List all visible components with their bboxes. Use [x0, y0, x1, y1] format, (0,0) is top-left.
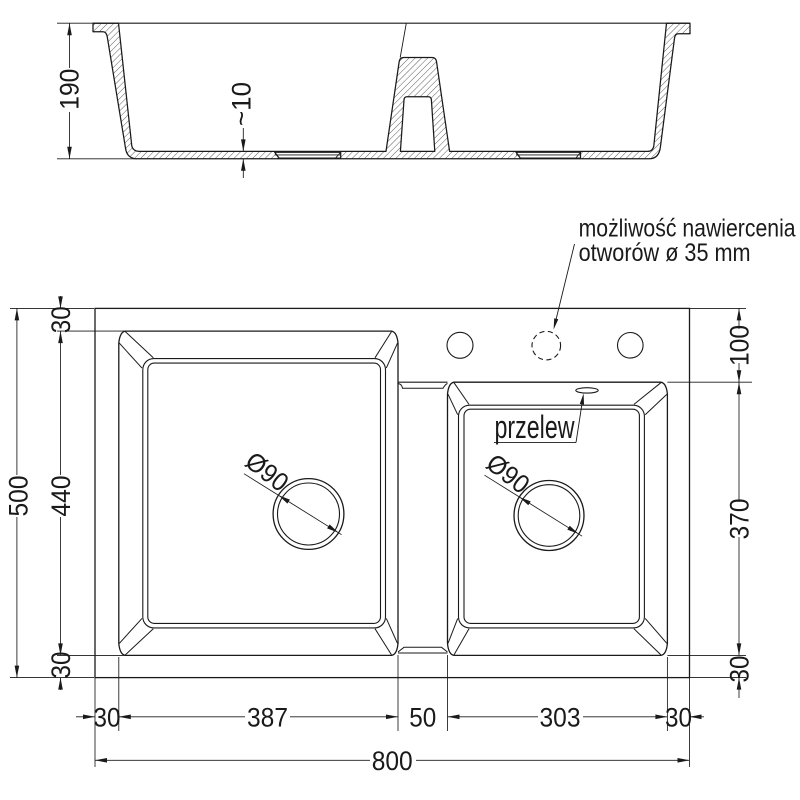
- svg-text:100: 100: [725, 325, 755, 366]
- svg-text:303: 303: [540, 703, 581, 733]
- svg-text:30: 30: [665, 703, 692, 733]
- svg-text:Ø90: Ø90: [481, 448, 536, 500]
- svg-text:800: 800: [372, 746, 413, 776]
- svg-text:30: 30: [46, 652, 76, 679]
- svg-text:przelew: przelew: [495, 409, 576, 445]
- svg-text:500: 500: [4, 476, 34, 517]
- svg-text:Ø90: Ø90: [240, 446, 295, 498]
- svg-text:30: 30: [46, 306, 76, 333]
- svg-text:50: 50: [409, 703, 436, 733]
- svg-text:~10: ~10: [227, 82, 257, 126]
- svg-text:387: 387: [247, 703, 288, 733]
- svg-text:30: 30: [94, 703, 121, 733]
- svg-text:190: 190: [55, 69, 85, 110]
- svg-text:440: 440: [46, 476, 76, 517]
- svg-text:30: 30: [725, 656, 755, 683]
- svg-text:otworów ø 35 mm: otworów ø 35 mm: [579, 239, 751, 267]
- svg-text:370: 370: [725, 499, 755, 540]
